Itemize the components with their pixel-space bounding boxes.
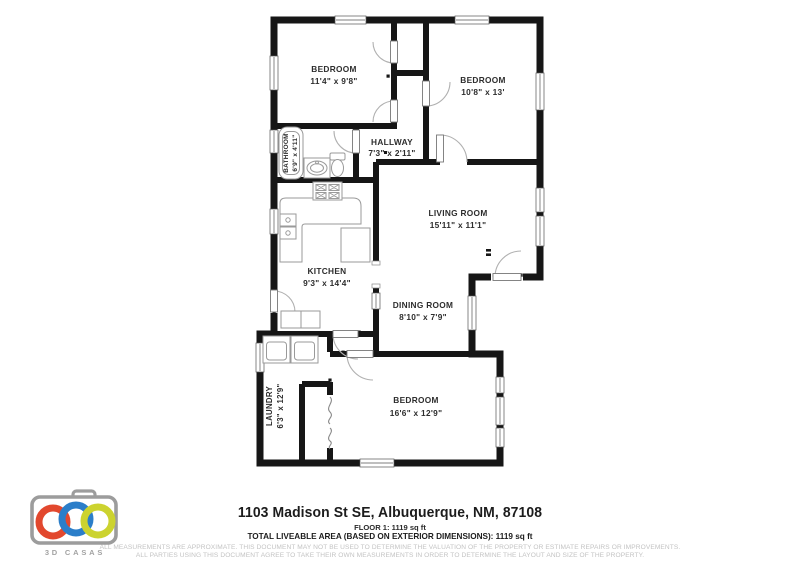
window <box>270 56 278 90</box>
window <box>335 16 366 24</box>
window <box>496 397 504 425</box>
door-leaf <box>353 130 360 153</box>
room-dims-kitchen: 9'3" x 14'4" <box>303 278 351 288</box>
floor-plan-svg: BEDROOM 11'4" x 9'8" BEDROOM 10'8" x 13'… <box>0 0 800 490</box>
floor-plan-page: BEDROOM 11'4" x 9'8" BEDROOM 10'8" x 13'… <box>0 0 800 566</box>
window <box>360 459 394 467</box>
cased-opening-jambs <box>372 261 380 288</box>
room-dims-bathroom: 6'9" x 4'11" <box>292 134 299 171</box>
room-label-laundry: LAUNDRY <box>265 386 274 426</box>
door-leaf <box>333 331 358 338</box>
room-dims-bedroom-3: 16'6" x 12'9" <box>390 408 443 418</box>
room-label-bedroom-2: BEDROOM <box>460 75 505 85</box>
closet-opening-squiggle <box>329 397 332 449</box>
room-dims-bedroom-2: 10'8" x 13' <box>461 87 504 97</box>
room-label-hallway: HALLWAY <box>371 137 413 147</box>
kitchen-sink-icon <box>280 227 296 239</box>
room-label-living-room: LIVING ROOM <box>428 208 487 218</box>
refrigerator-icon <box>341 228 370 262</box>
window <box>496 428 504 447</box>
room-label-bathroom: BATHROOM <box>283 133 290 173</box>
room-label-bedroom-1: BEDROOM <box>311 64 356 74</box>
room-label-dining-room: DINING ROOM <box>393 300 453 310</box>
window <box>455 16 489 24</box>
window <box>536 188 544 212</box>
camera-logo-icon <box>32 491 116 543</box>
door-leaf <box>347 351 373 358</box>
window <box>270 209 278 234</box>
toilet-icon <box>332 160 344 177</box>
window <box>468 296 476 330</box>
address-line: 1103 Madison St SE, Albuquerque, NM, 871… <box>27 504 752 521</box>
door-leaf <box>391 100 398 122</box>
room-dims-living-room: 15'11" x 11'1" <box>430 220 487 230</box>
window <box>536 73 544 110</box>
door-leaf <box>391 41 398 63</box>
window <box>496 377 504 393</box>
room-dims-hallway: 7'3" x 2'11" <box>368 148 415 158</box>
door-leaf <box>271 290 278 312</box>
door-leaf <box>493 274 521 281</box>
pass-through-opening <box>372 293 380 309</box>
room-label-bedroom-3: BEDROOM <box>393 395 438 405</box>
toilet-tank <box>330 153 345 160</box>
door-leaf <box>423 81 430 106</box>
door-leaf <box>437 135 444 162</box>
door-arc <box>440 135 467 162</box>
room-dims-dining-room: 8'10" x 7'9" <box>399 312 447 322</box>
floor-vent-marker <box>486 249 491 256</box>
room-dims-bedroom-1: 11'4" x 9'8" <box>310 76 357 86</box>
room-label-kitchen: KITCHEN <box>308 266 347 276</box>
window <box>270 130 278 153</box>
kitchen-sink-icon <box>280 214 296 226</box>
room-dims-laundry: 6'3" x 12'9" <box>276 383 285 428</box>
window <box>536 216 544 246</box>
company-logo: 3D CASAS <box>30 489 125 561</box>
logo-text: 3D CASAS <box>45 548 105 557</box>
